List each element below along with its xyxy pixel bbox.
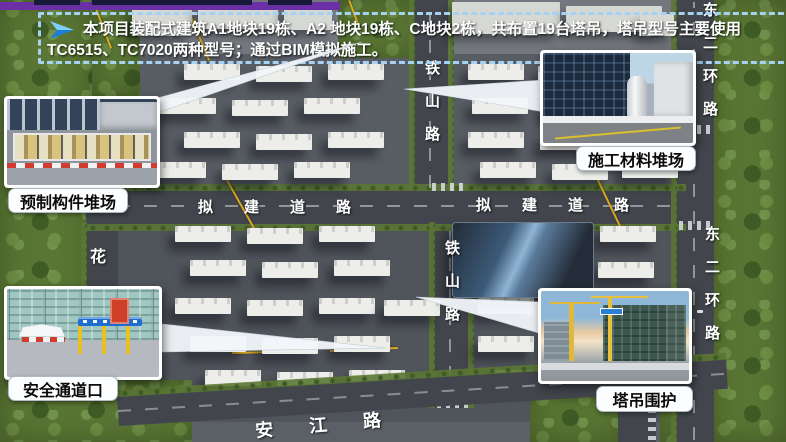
photo-detail <box>543 53 630 118</box>
building-block <box>334 260 390 276</box>
photo-detail <box>591 296 647 298</box>
building-block <box>478 298 534 314</box>
arrow-pointer-icon <box>49 20 75 40</box>
building-block <box>600 226 656 242</box>
building-block <box>384 300 440 316</box>
callout-label-crane: 塔吊围护 <box>596 386 693 412</box>
building-block <box>294 162 350 178</box>
building-block <box>468 64 524 80</box>
building-block <box>222 164 278 180</box>
building-block <box>468 132 524 148</box>
building-block <box>328 64 384 80</box>
building-block <box>319 226 375 242</box>
photo-detail <box>550 302 600 304</box>
slide-construction-site-layout: 铁山路 铁山路 拟建道路 拟建道路 东二环路 东二环路 花 安江路 本项目装配式… <box>0 0 786 442</box>
crosswalk <box>648 412 656 440</box>
safety-passage-entrance-photo <box>7 289 159 377</box>
building-block <box>319 298 375 314</box>
top-dark-segment <box>92 0 252 5</box>
photo-detail <box>600 308 623 315</box>
prefab-component-yard-photo <box>7 99 157 185</box>
photo-detail <box>7 99 100 130</box>
callout-label-prefab: 预制构件堆场 <box>8 188 128 213</box>
road-verge <box>86 184 686 191</box>
callout-label-materials: 施工材料堆场 <box>576 146 696 171</box>
road-label-hua: 花 <box>90 243 106 267</box>
road-label-east-ring-lower: 东二环路 <box>701 226 722 358</box>
building-block <box>334 336 390 352</box>
building-block <box>190 336 246 352</box>
building-block <box>480 162 536 178</box>
photo-detail <box>541 363 689 370</box>
building-block <box>256 66 312 82</box>
tower-crane-enclosure-photo <box>541 291 689 381</box>
building-block <box>256 134 312 150</box>
building-block <box>472 98 528 114</box>
building-block <box>232 100 288 116</box>
inset-safety-passage <box>4 286 162 380</box>
photo-detail <box>7 163 157 168</box>
photo-detail <box>110 298 128 324</box>
photo-detail <box>13 133 151 161</box>
large-glass-roof-building <box>452 222 594 298</box>
road-label-tieshan-lower: 铁山路 <box>441 240 462 339</box>
building-block <box>262 338 318 354</box>
photo-detail <box>569 302 573 361</box>
building-block <box>328 132 384 148</box>
building-block <box>160 98 216 114</box>
building-block <box>598 262 654 278</box>
building-block <box>247 300 303 316</box>
road-label-proposed-right: 拟建道路 <box>476 194 660 215</box>
building-block <box>190 260 246 276</box>
inset-material-yard <box>540 50 696 146</box>
building-block <box>304 98 360 114</box>
inset-prefab-yard <box>4 96 160 188</box>
building-block <box>247 228 303 244</box>
top-dark-segment <box>34 0 80 5</box>
photo-detail <box>78 326 142 354</box>
building-block <box>184 64 240 80</box>
top-dark-segment <box>268 0 312 5</box>
callout-label-safety: 安全通道口 <box>8 376 118 401</box>
building-block <box>175 226 231 242</box>
description-line-1: 本项目装配式建筑A1地块19栋、A2 地块19栋、C地块2栋，共布置19台塔吊，… <box>47 19 786 40</box>
photo-detail <box>100 102 157 130</box>
photo-detail <box>654 62 693 116</box>
photo-detail <box>608 296 612 361</box>
building-block <box>478 336 534 352</box>
building-block <box>175 298 231 314</box>
inset-crane-enclosure <box>538 288 692 384</box>
building-block <box>184 132 240 148</box>
photo-detail <box>22 337 65 342</box>
building-block <box>262 262 318 278</box>
description-text-1: 本项目装配式建筑A1地块19栋、A2 地块19栋、C地块2栋，共布置19台塔吊，… <box>83 19 741 40</box>
construction-material-yard-photo <box>543 53 693 143</box>
crosswalk <box>432 183 466 191</box>
photo-detail <box>627 76 647 116</box>
road-label-proposed-left: 拟建道路 <box>198 196 382 217</box>
road-label-tieshan-upper: 铁山路 <box>421 60 442 159</box>
